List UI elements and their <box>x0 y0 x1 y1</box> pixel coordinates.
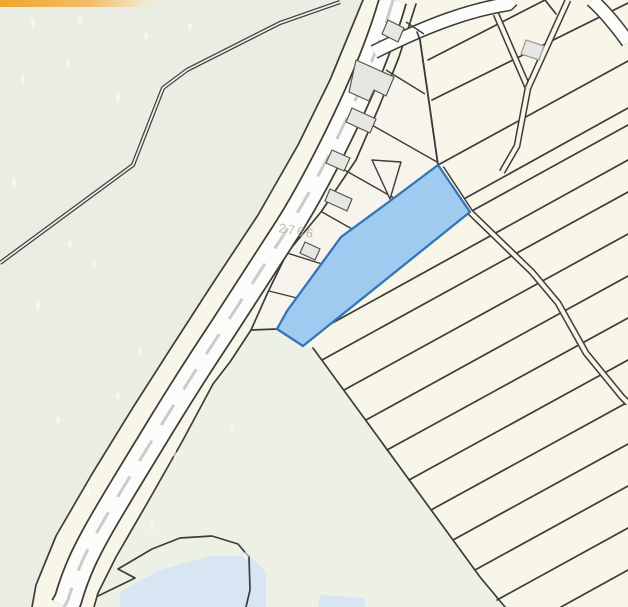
map-canvas[interactable]: 2766 <box>0 0 628 607</box>
toolbar-accent-bar <box>0 0 162 7</box>
map-viewport: 2766 <box>0 0 628 607</box>
